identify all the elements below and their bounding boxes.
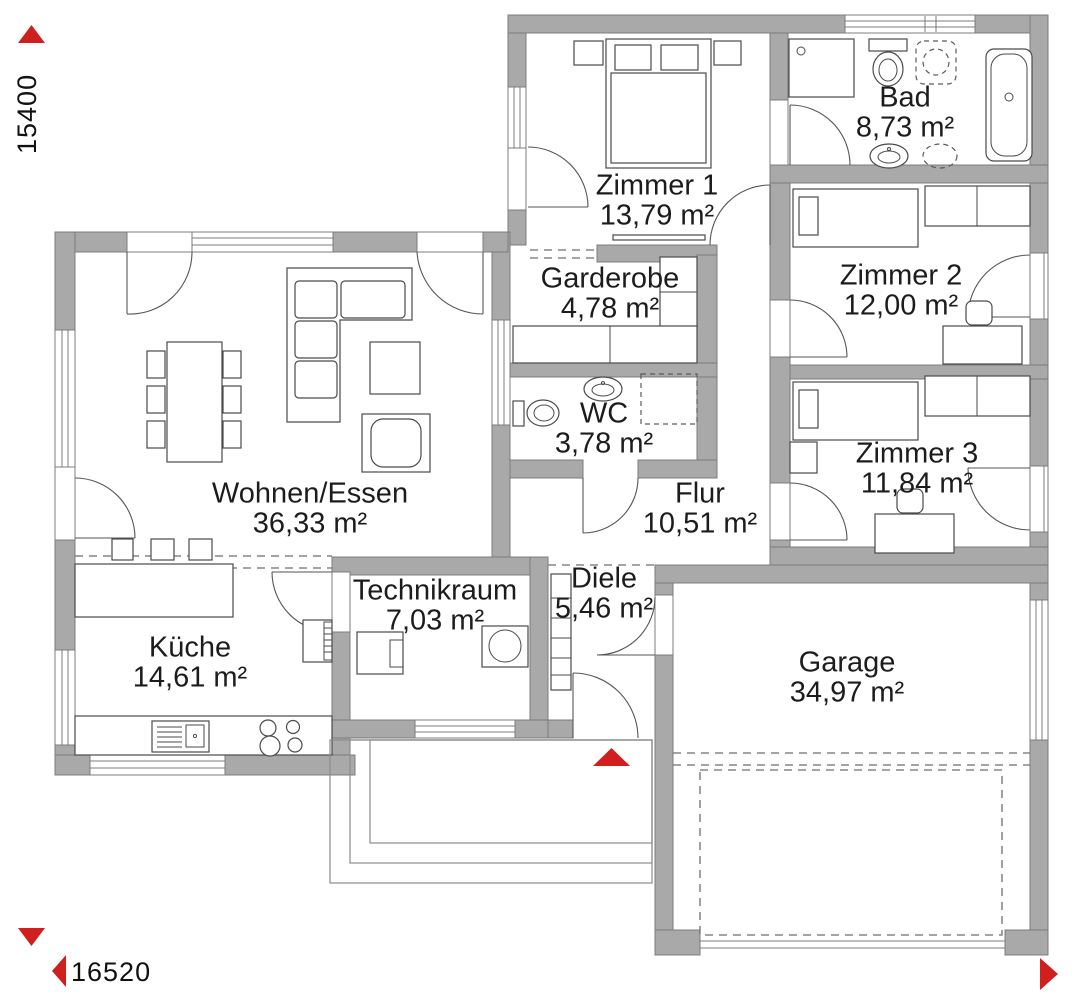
room-label-zimmer2: Zimmer 2 12,00 m² bbox=[840, 261, 962, 322]
bathtub-icon bbox=[986, 49, 1032, 161]
vertical-dimension-label: 15400 bbox=[12, 44, 43, 154]
toilet-icon bbox=[869, 39, 907, 86]
single-bed-icon bbox=[793, 189, 918, 247]
window-living-left bbox=[55, 330, 75, 467]
window-garage-right bbox=[1030, 600, 1048, 740]
door-gap-garage bbox=[655, 595, 673, 655]
room-name: Garage bbox=[790, 648, 904, 678]
room-label-garderobe: Garderobe 4,78 m² bbox=[541, 264, 680, 325]
room-label-wohnen: Wohnen/Essen 36,33 m² bbox=[212, 479, 408, 540]
appliance-icon bbox=[357, 632, 403, 674]
room-area: 10,51 m² bbox=[643, 509, 757, 539]
room-area: 8,73 m² bbox=[856, 113, 954, 143]
door-gap-bad bbox=[770, 100, 788, 165]
room-name: Diele bbox=[555, 564, 653, 594]
door-living-terrace bbox=[75, 478, 135, 538]
fridge-icon bbox=[303, 620, 332, 662]
room-name: Zimmer 3 bbox=[856, 439, 978, 469]
room-area: 14,61 m² bbox=[133, 663, 247, 693]
window-closet-column bbox=[492, 320, 510, 425]
chair-icon bbox=[223, 351, 241, 378]
shower-icon bbox=[916, 41, 956, 84]
floor-plan-drawing bbox=[0, 0, 1080, 1006]
floor-plan-canvas: 15400 16520 Zimmer 1 13,79 m² Bad 8,73 m… bbox=[0, 0, 1080, 1006]
door-zimmer1 bbox=[710, 185, 770, 245]
horizontal-dimension-label: 16520 bbox=[71, 957, 151, 988]
window-zimmer1-left bbox=[508, 87, 526, 148]
kitchen-island-icon bbox=[75, 539, 233, 617]
room-name: Wohnen/Essen bbox=[212, 479, 408, 509]
room-area: 13,79 m² bbox=[596, 201, 718, 231]
sink-icon bbox=[870, 144, 908, 168]
dining-table-icon bbox=[147, 342, 241, 462]
door-gap-zimmer2-french bbox=[1030, 253, 1048, 319]
door-gap-living-terrace bbox=[55, 467, 75, 540]
room-name: Zimmer 1 bbox=[596, 171, 718, 201]
room-label-garage: Garage 34,97 m² bbox=[790, 648, 904, 709]
chair-icon bbox=[147, 351, 165, 378]
window-technikraum-bottom bbox=[415, 720, 515, 738]
room-label-zimmer3: Zimmer 3 11,84 m² bbox=[856, 439, 978, 500]
dimension-arrow-down-icon bbox=[18, 928, 45, 946]
shelf-icon bbox=[790, 442, 817, 473]
stool-icon bbox=[151, 539, 174, 560]
room-label-diele: Diele 5,46 m² bbox=[555, 564, 653, 625]
kitchen-sink-icon bbox=[152, 721, 209, 752]
rug-icon bbox=[613, 235, 705, 240]
double-bed-icon bbox=[606, 39, 711, 168]
room-name: Flur bbox=[643, 479, 757, 509]
stool-icon bbox=[189, 539, 212, 560]
room-area: 12,00 m² bbox=[840, 291, 962, 321]
door-wc bbox=[583, 478, 638, 533]
room-name: Küche bbox=[133, 633, 247, 663]
room-name: Garderobe bbox=[541, 264, 680, 294]
chair-icon bbox=[147, 386, 165, 413]
chair-icon bbox=[223, 386, 241, 413]
room-label-wc: WC 3,78 m² bbox=[555, 399, 653, 460]
shower-icon bbox=[923, 144, 957, 168]
door-zimmer2 bbox=[790, 300, 847, 357]
room-label-bad: Bad 8,73 m² bbox=[856, 83, 954, 144]
room-name: Bad bbox=[856, 83, 954, 113]
room-name: Zimmer 2 bbox=[840, 261, 962, 291]
room-label-kueche: Küche 14,61 m² bbox=[133, 633, 247, 694]
room-area: 3,78 m² bbox=[555, 429, 653, 459]
door-entrance bbox=[573, 673, 638, 738]
door-zimmer3 bbox=[790, 483, 847, 540]
window-living-top bbox=[190, 232, 333, 252]
entrance-arrow-icon bbox=[593, 748, 630, 766]
toilet-icon bbox=[513, 400, 559, 426]
washing-machine-icon bbox=[789, 39, 854, 97]
door-gap-kitchen bbox=[332, 572, 350, 632]
door-gap-zimmer3-french bbox=[1030, 466, 1048, 532]
chair-icon bbox=[223, 421, 241, 448]
window-kitchen-bottom bbox=[90, 755, 225, 775]
nightstand-icon bbox=[714, 41, 741, 65]
single-bed-icon bbox=[793, 382, 918, 440]
wardrobe-icon bbox=[925, 376, 1030, 416]
room-area: 34,97 m² bbox=[790, 678, 904, 708]
dimension-arrow-left-icon bbox=[52, 955, 66, 987]
dimension-arrow-up-icon bbox=[18, 25, 45, 43]
window-kitchen-left bbox=[55, 650, 75, 745]
room-area: 36,33 m² bbox=[212, 509, 408, 539]
window-bad-top bbox=[845, 15, 975, 33]
room-label-zimmer1: Zimmer 1 13,79 m² bbox=[596, 171, 718, 232]
nightstand-icon bbox=[574, 41, 603, 65]
room-area: 7,03 m² bbox=[353, 606, 517, 636]
stool-icon bbox=[112, 539, 133, 560]
car-space-outline bbox=[700, 770, 1002, 935]
room-name: Technikraum bbox=[353, 576, 517, 606]
door-gap-zimmer1-terrace bbox=[508, 148, 526, 210]
door-living-top-left bbox=[127, 252, 192, 314]
door-living-top-right bbox=[417, 252, 483, 314]
door-gap-living-top-right bbox=[417, 232, 483, 252]
living-furniture bbox=[147, 268, 430, 472]
door-zimmer1-terrace bbox=[528, 147, 588, 207]
door-gap-zimmer3 bbox=[770, 483, 790, 540]
room-area: 11,84 m² bbox=[856, 469, 978, 499]
room-area: 4,78 m² bbox=[541, 294, 680, 324]
garage-markings bbox=[673, 753, 1030, 948]
chair-icon bbox=[966, 301, 992, 325]
chair-icon bbox=[147, 421, 165, 448]
door-gap-living-top-left bbox=[127, 232, 192, 252]
door-gap-zimmer2 bbox=[770, 300, 790, 357]
room-label-technikraum: Technikraum 7,03 m² bbox=[353, 576, 517, 637]
dimension-arrow-right-icon bbox=[1040, 958, 1058, 990]
closet-icon bbox=[513, 326, 697, 363]
wardrobe-icon bbox=[925, 186, 1030, 226]
room-name: WC bbox=[555, 399, 653, 429]
coffee-table-icon bbox=[370, 342, 420, 394]
armchair-icon bbox=[362, 414, 430, 472]
room-label-flur: Flur 10,51 m² bbox=[643, 479, 757, 540]
room-area: 5,46 m² bbox=[555, 594, 653, 624]
door-bad bbox=[790, 105, 850, 165]
